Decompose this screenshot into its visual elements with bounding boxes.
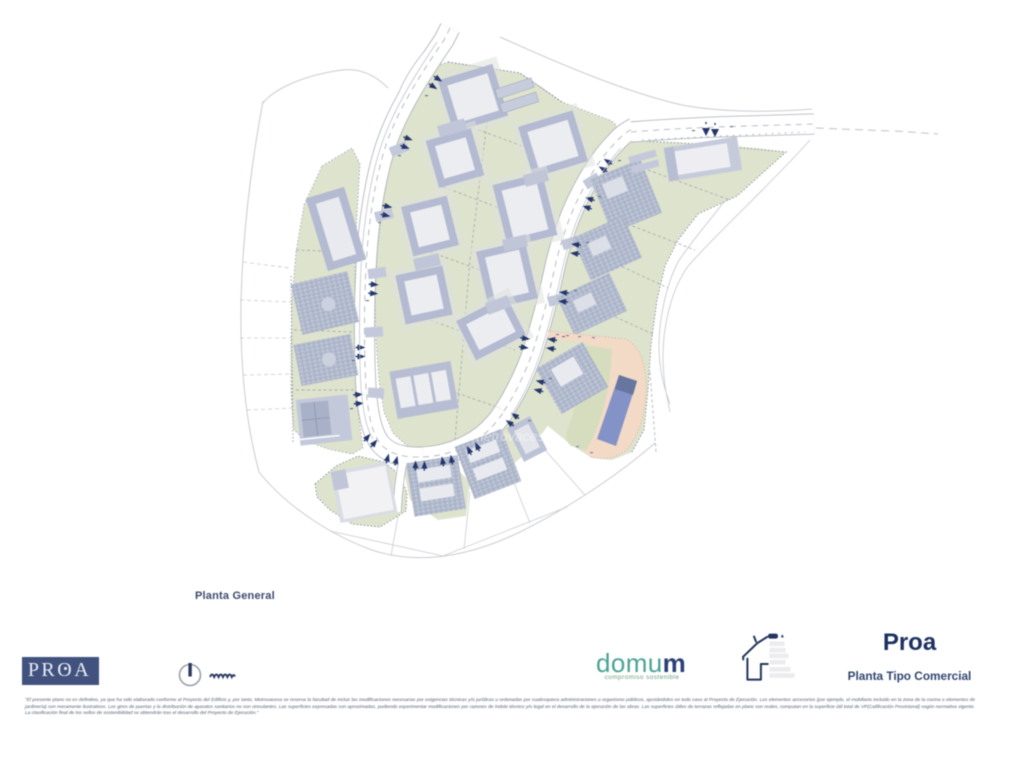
svg-text:metrovacesa: metrovacesa <box>472 428 552 444</box>
